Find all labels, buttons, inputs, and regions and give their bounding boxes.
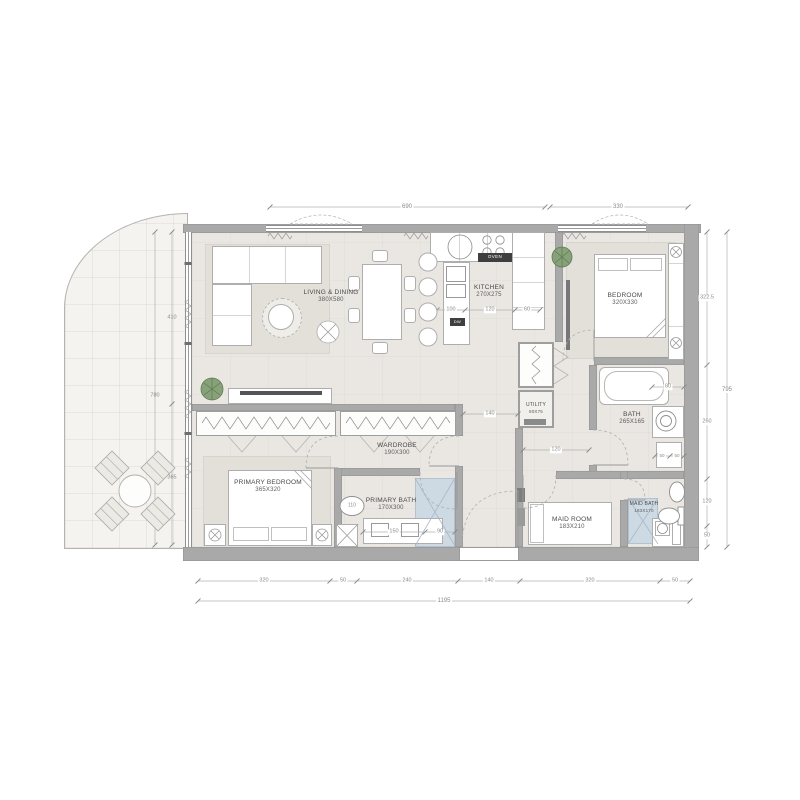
room-size: 183X210 (552, 524, 592, 532)
dishwasher-label: DW (454, 320, 461, 324)
wardrobe-closet-right (340, 411, 456, 436)
room-name: LIVING & DINING (303, 289, 358, 297)
primary-nightstand-left (204, 524, 226, 546)
label-primary-bedroom: PRIMARY BEDROOM 365X320 (234, 479, 302, 495)
dim-bottom-320b: 320 (584, 578, 596, 584)
utility-closet (518, 342, 554, 388)
bedroom-pillow-2 (630, 258, 662, 271)
room-size: 190X300 (377, 450, 417, 458)
bedroom-console (566, 280, 570, 350)
wall-right (684, 224, 699, 561)
wall-corridor-left-lower (455, 466, 463, 547)
room-size: 320X330 (608, 300, 643, 308)
primary-basin-1 (371, 523, 389, 537)
dim-pbath-110: 110 (347, 504, 358, 509)
primary-pillow-1 (233, 527, 269, 541)
room-name: WARDROBE (377, 442, 417, 450)
bath-tub-inner (604, 371, 664, 401)
dim-bottom-140: 140 (483, 578, 495, 584)
dining-chair-5 (372, 250, 388, 262)
window-living (266, 225, 362, 232)
dining-chair-2 (348, 308, 360, 323)
oven-label: OVEN (488, 255, 502, 260)
room-name: PRIMARY BEDROOM (234, 479, 302, 487)
dining-chair-3 (404, 276, 416, 291)
window-bedroom (558, 225, 646, 232)
wall-maid-divider (620, 500, 628, 547)
dining-chair-6 (372, 342, 388, 354)
wall-corridor-left-upper (455, 404, 463, 436)
kitchen-sink-b (446, 284, 466, 298)
wall-bottom-right (518, 547, 699, 561)
dining-table (362, 264, 402, 340)
utility-fixture (524, 419, 546, 425)
dim-right-322-5: 322.5 (699, 295, 716, 301)
label-maid-room: MAID ROOM 183X210 (552, 516, 592, 532)
laundry-shelf (672, 521, 681, 545)
bath-vanity (652, 406, 684, 438)
bedroom-pillow-1 (598, 258, 628, 271)
room-name: BATH (619, 411, 644, 419)
label-wardrobe: WARDROBE 190X300 (377, 442, 417, 458)
label-bedroom: BEDROOM 320X330 (608, 292, 643, 308)
label-bath: BATH 265X165 (619, 411, 644, 427)
room-size: 265X165 (619, 419, 644, 427)
dim-balcony-365: 365 (166, 475, 178, 481)
room-size: 380X580 (303, 297, 358, 305)
wall-primary-bath-top (334, 468, 420, 476)
maid-bed-pillow (530, 504, 544, 543)
bay-window-bows (290, 215, 648, 224)
label-living-dining: LIVING & DINING 380X580 (303, 289, 358, 305)
room-name: MAID BATH (630, 501, 659, 508)
wall-maid-divider-stub (620, 471, 628, 479)
hall-db-panel-2 (517, 508, 525, 526)
dim-bath-80: 80 (663, 384, 672, 390)
room-name: UTILITY (526, 402, 546, 409)
dishwasher-label-box: DW (450, 318, 465, 326)
sofa-horizontal (212, 246, 322, 284)
room-name: PRIMARY BATH (366, 497, 416, 505)
dim-bottom-240: 240 (401, 578, 413, 584)
label-utility: UTILITY 80X75 (526, 402, 546, 414)
dim-balcony-780: 780 (149, 393, 161, 399)
window-balcony-wall (185, 232, 192, 547)
hall-db-panel (517, 488, 525, 502)
balcony-terrace (64, 213, 188, 549)
dim-hall-140: 140 (484, 411, 496, 417)
kitchen-sink-a (446, 266, 466, 282)
room-size: 183X170 (630, 507, 659, 513)
primary-nightstand-right (312, 524, 332, 546)
bedroom-side-strip (668, 243, 684, 360)
primary-pillow-2 (271, 527, 307, 541)
primary-basin-2 (401, 523, 419, 537)
label-kitchen: KITCHEN 270X275 (474, 284, 504, 300)
dim-right-total-795: 795 (720, 387, 733, 393)
wall-bedroom-left (555, 232, 563, 342)
dim-right-260: 260 (701, 419, 713, 425)
room-size: 80X75 (526, 408, 546, 414)
wall-bath-left-upper (589, 365, 597, 430)
wall-wardrobe-top (192, 404, 455, 411)
room-size: 365X320 (234, 487, 302, 495)
label-primary-bath: PRIMARY BATH 170X300 (366, 497, 416, 513)
room-name: BEDROOM (608, 292, 643, 300)
wardrobe-closet-left (196, 411, 336, 436)
dim-bottom-total-1195: 1195 (436, 598, 452, 604)
dim-kitchen-60: 60 (522, 307, 531, 313)
dim-top-690: 690 (400, 204, 413, 210)
room-size: 170X300 (366, 505, 416, 513)
dim-right-50: 50 (702, 533, 711, 539)
dim-bath-50a: 50 (658, 454, 666, 459)
dim-pbath-90: 90 (435, 529, 444, 535)
dim-balcony-410: 410 (166, 315, 178, 321)
tv-screen (240, 391, 322, 395)
dining-chair-4 (404, 308, 416, 323)
dim-right-120: 120 (701, 499, 713, 505)
wall-bottom-left (183, 547, 460, 561)
dim-bottom-50a: 50 (338, 578, 347, 584)
room-name: KITCHEN (474, 284, 504, 292)
dim-bottom-320a: 320 (258, 578, 270, 584)
oven-label-box: OVEN (478, 253, 512, 262)
floor-plan: OVEN DW (0, 0, 800, 800)
dim-pbath-150: 150 (388, 529, 400, 535)
dim-corridor-120: 120 (550, 447, 562, 453)
dim-bottom-50b: 50 (670, 578, 679, 584)
dim-top-330: 330 (611, 204, 624, 210)
entrance-threshold (460, 547, 518, 561)
kitchen-tall-cabinets (512, 232, 545, 330)
armchair-round (268, 304, 294, 330)
dim-kitchen-100: 100 (445, 307, 457, 313)
washing-machine (655, 521, 670, 536)
dim-bath-50b: 50 (673, 454, 681, 459)
sofa-chaise (212, 284, 252, 346)
room-size: 270X275 (474, 292, 504, 300)
primary-shaft-box (336, 524, 358, 547)
label-maid-bath: MAID BATH 183X170 (630, 501, 659, 513)
room-name: MAID ROOM (552, 516, 592, 524)
dim-kitchen-120: 120 (484, 307, 496, 313)
